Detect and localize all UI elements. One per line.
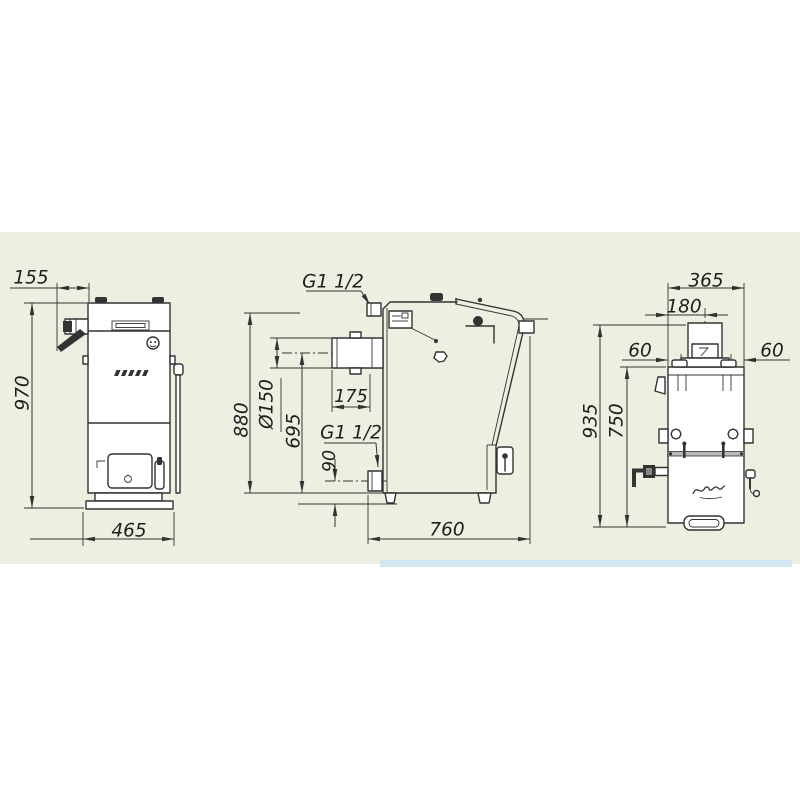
- flue-pipe: [332, 338, 383, 368]
- lug-left: [672, 360, 687, 367]
- ash-door: [108, 454, 152, 488]
- hinge-tab-right: [744, 429, 753, 443]
- foot-front: [385, 493, 396, 503]
- dim-rear-overall-height: 935: [580, 403, 601, 438]
- nut-right: [728, 429, 738, 439]
- dim-left-stub-offset: 60: [628, 340, 652, 361]
- side-lever-handle: [174, 364, 183, 375]
- label-supply-thread: G1 1/2: [302, 271, 364, 292]
- dim-flue-diameter: Ø150: [256, 379, 277, 430]
- nut-left: [671, 429, 681, 439]
- dim-front-lever-offset: 155: [13, 267, 48, 288]
- dim-flue-axis-height: 695: [283, 413, 304, 448]
- dim-rear-width: 365: [688, 270, 723, 291]
- dim-flue-offset: 180: [666, 296, 701, 317]
- damper-rod-guide-bottom: [350, 368, 361, 374]
- hinge-tab-left: [659, 429, 668, 443]
- crank-top: [746, 470, 755, 478]
- dim-front-height: 970: [12, 375, 33, 410]
- shaker-arm: [655, 468, 668, 476]
- dim-front-width: 465: [111, 520, 146, 541]
- split-band: [668, 452, 744, 457]
- side-stub-left: [83, 356, 88, 364]
- dim-right-stub-offset: 60: [760, 340, 784, 361]
- top-cap-left: [95, 297, 107, 303]
- dim-rear-body-height: 750: [606, 403, 627, 438]
- top-cap-right: [152, 297, 164, 303]
- rating-plate: [389, 311, 412, 328]
- base-plate: [86, 501, 173, 509]
- supply-fitting: [367, 303, 381, 316]
- lug-right: [721, 360, 736, 367]
- return-fitting: [368, 471, 382, 491]
- crank-loop: [754, 491, 760, 497]
- rear-body-outline: [668, 367, 744, 523]
- sensor-pocket: [474, 317, 483, 326]
- plinth: [95, 493, 162, 501]
- boiler-dimension-drawing: 155 970 465: [0, 0, 800, 800]
- dim-return-axis-height: 90: [320, 450, 340, 472]
- ash-drawer-handle: [684, 516, 724, 530]
- dim-flue-length: 175: [334, 387, 367, 407]
- side-lever-rod: [176, 375, 180, 493]
- label-return-thread: G1 1/2: [320, 422, 382, 443]
- drawing-canvas: 155 970 465: [0, 0, 800, 800]
- shaker-grip: [155, 461, 164, 489]
- foot-rear: [478, 493, 491, 503]
- top-cap: [430, 293, 443, 301]
- dim-side-height: 880: [231, 402, 252, 437]
- bottom-strip: [380, 560, 792, 567]
- side-stub-right: [170, 356, 175, 364]
- damper-knob: [63, 321, 72, 332]
- damper-rod-guide-top: [350, 332, 361, 338]
- rear-cleanout-stub: [519, 321, 534, 333]
- dim-side-depth: 760: [429, 519, 464, 540]
